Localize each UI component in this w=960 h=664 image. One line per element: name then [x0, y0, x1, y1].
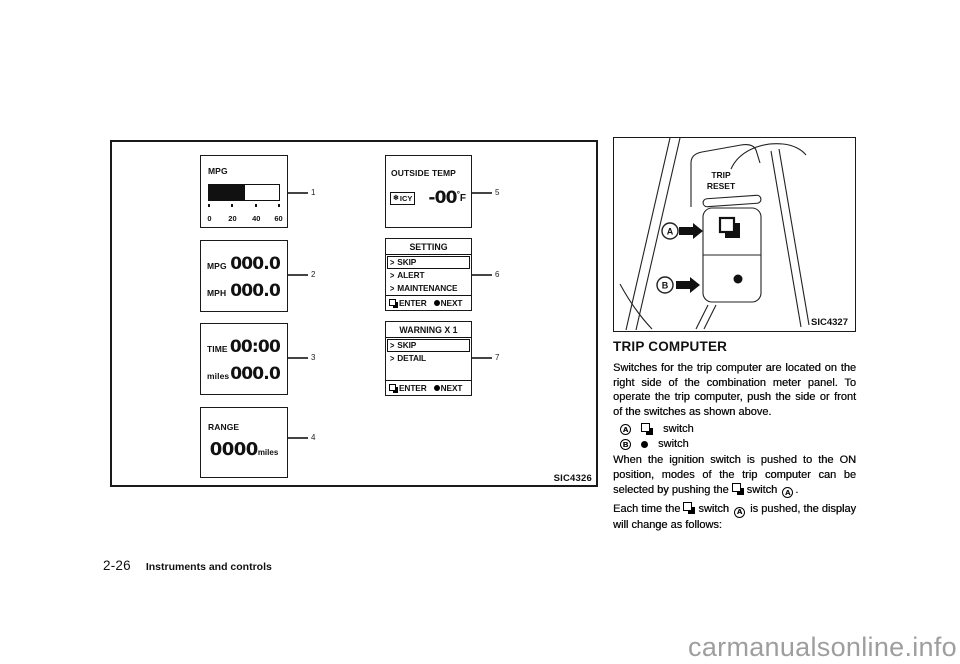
range-value: 0000 — [210, 439, 258, 460]
temp-row: ❄ICY -00°F — [386, 188, 471, 208]
warning-footer: ENTER NEXT — [386, 380, 471, 395]
panel-outside-temp-display: OUTSIDE TEMP ❄ICY -00°F — [385, 155, 472, 228]
legend-row-b: B switch — [620, 438, 856, 450]
square-switch-icon — [641, 423, 653, 435]
item-arrow: > — [390, 270, 394, 281]
item-arrow: > — [390, 353, 394, 364]
miles-row: miles 000.0 — [201, 365, 287, 383]
square-switch-icon — [732, 483, 744, 495]
chapter-title: Instruments and controls — [146, 561, 272, 573]
next-label: NEXT — [441, 383, 463, 393]
watermark: carmanualsonline.info — [688, 632, 957, 663]
menu-item-maintenance: >MAINTENANCE — [387, 282, 470, 295]
switch-location-drawing: TRIP RESET A B SIC4327 — [614, 138, 854, 330]
time-row: TIME 00:00 — [201, 338, 287, 356]
leader-line — [288, 274, 308, 275]
mph-row: MPH 000.0 — [201, 282, 287, 300]
tick-mark — [231, 204, 233, 207]
callout-5: 5 — [472, 189, 499, 197]
dot-switch-icon — [734, 275, 743, 284]
panel-mpg-mph-display: MPG 000.0 MPH 000.0 — [200, 240, 288, 312]
panel-warning-menu: WARNING X 1 >SKIP >DETAIL ENTER NEXT — [385, 321, 472, 396]
enter-label: ENTER — [399, 383, 427, 393]
tick-20: 20 — [225, 204, 239, 226]
enter-label: ENTER — [399, 298, 427, 308]
mpg-row: MPG 000.0 — [201, 255, 287, 273]
fahrenheit-unit: F — [460, 193, 466, 204]
paragraph-display-change: Each time theswitch A is pushed, the dis… — [613, 502, 856, 532]
arrow-b-icon — [676, 277, 700, 293]
leader-line — [288, 437, 308, 438]
panel-mpg-bar-display: MPG 0 20 40 60 — [200, 155, 288, 228]
page-footer: 2-26 Instruments and controls — [103, 558, 272, 573]
trim-curve — [620, 284, 652, 329]
tick-mark — [278, 204, 280, 207]
tick-60: 60 — [272, 204, 286, 226]
trip-label: TRIP — [711, 170, 731, 180]
legend-a-label: switch — [663, 423, 694, 435]
arrow-a-icon — [679, 223, 703, 239]
callout-1: 1 — [288, 189, 315, 197]
mpg-bar-ticks: 0 20 40 60 — [208, 204, 280, 220]
callout-4: 4 — [288, 434, 315, 442]
callout-7: 7 — [472, 354, 499, 362]
circle-a-icon: A — [734, 507, 745, 518]
page-number: 2-26 — [103, 558, 131, 573]
circle-b-icon: B — [620, 439, 631, 450]
tick-0: 0 — [202, 204, 216, 226]
menu-item-skip: >SKIP — [387, 256, 470, 269]
panel-setting-menu: SETTING >SKIP >ALERT >MAINTENANCE >OPTIO… — [385, 238, 472, 311]
outside-temp-label: OUTSIDE TEMP — [391, 168, 471, 178]
time-label: TIME — [207, 344, 228, 354]
dash-cowl-curve — [731, 144, 806, 169]
item-arrow: > — [390, 340, 394, 351]
mpg-value: 000.0 — [230, 255, 280, 273]
leader-line — [472, 357, 492, 358]
range-label: RANGE — [208, 422, 287, 432]
callout-letter-b: B — [662, 281, 669, 291]
callout-2: 2 — [288, 271, 315, 279]
pillar-line — [771, 151, 801, 327]
paragraph-switch-location: Switches for the trip computer are locat… — [613, 361, 856, 419]
tick-40: 40 — [249, 204, 263, 226]
mpg-bar-fill — [209, 185, 245, 200]
leader-line — [472, 274, 492, 275]
time-value: 00:00 — [230, 338, 280, 356]
mph-label: MPH — [207, 288, 226, 298]
figure-trip-reset-switches: TRIP RESET A B SIC4327 — [613, 137, 856, 332]
item-arrow: > — [390, 283, 394, 294]
figure-code-left: SIC4326 — [534, 473, 592, 484]
dot-switch-icon — [641, 441, 648, 448]
setting-footer: ENTER NEXT — [386, 295, 471, 310]
figure-code-right: SIC4327 — [811, 317, 848, 328]
leader-line — [472, 192, 492, 193]
next-switch-icon — [434, 300, 440, 306]
icy-label: ICY — [400, 194, 413, 203]
mpg-bar-gauge — [208, 184, 280, 201]
pillar-line — [779, 149, 809, 325]
mpg-label: MPG — [207, 261, 227, 271]
enter-switch-icon — [389, 384, 398, 393]
circle-a-icon: A — [620, 424, 631, 435]
snowflake-icon: ❄ — [393, 194, 399, 202]
item-arrow: > — [390, 257, 394, 268]
menu-item-detail: >DETAIL — [387, 352, 470, 365]
panel-range-display: RANGE 0000miles — [200, 407, 288, 478]
miles-label: miles — [207, 371, 229, 381]
setting-title: SETTING — [386, 239, 471, 255]
enter-switch-icon — [389, 299, 398, 308]
temp-value: -00 — [428, 188, 456, 208]
reset-label: RESET — [707, 181, 736, 191]
square-switch-icon — [683, 502, 695, 514]
tick-mark — [255, 204, 257, 207]
square-switch-icon — [720, 218, 734, 232]
legend-b-label: switch — [658, 438, 689, 450]
article-column: TRIP COMPUTER Switches for the trip comp… — [613, 339, 856, 537]
mpg-bar-label: MPG — [208, 166, 287, 176]
circle-a-icon: A — [782, 487, 793, 498]
warning-items: >SKIP >DETAIL — [386, 338, 471, 365]
callout-6: 6 — [472, 271, 499, 279]
callout-letter-a: A — [667, 227, 674, 237]
range-unit: miles — [258, 448, 278, 457]
panel-time-miles-display: TIME 00:00 miles 000.0 — [200, 323, 288, 395]
leader-line — [288, 357, 308, 358]
paragraph-mode-selection: When the ignition switch is pushed to th… — [613, 453, 856, 498]
switch-bezel-ridge — [703, 195, 761, 207]
range-row: 0000miles — [201, 439, 287, 460]
section-heading: TRIP COMPUTER — [613, 339, 856, 354]
leader-line — [288, 192, 308, 193]
callout-3: 3 — [288, 354, 315, 362]
menu-item-skip: >SKIP — [387, 339, 470, 352]
manual-page: { "figure_left": { "caption": "SIC4326",… — [0, 0, 960, 664]
warning-title: WARNING X 1 — [386, 322, 471, 338]
figure-trip-computer-displays — [110, 140, 598, 487]
icy-badge: ❄ICY — [390, 192, 415, 205]
mph-value: 000.0 — [230, 282, 280, 300]
legend-row-a: A switch — [620, 423, 856, 435]
tick-mark — [208, 204, 210, 207]
next-switch-icon — [434, 385, 440, 391]
next-label: NEXT — [441, 298, 463, 308]
temp-reading: -00°F — [428, 188, 466, 208]
miles-value: 000.0 — [230, 365, 280, 383]
menu-item-alert: >ALERT — [387, 269, 470, 282]
